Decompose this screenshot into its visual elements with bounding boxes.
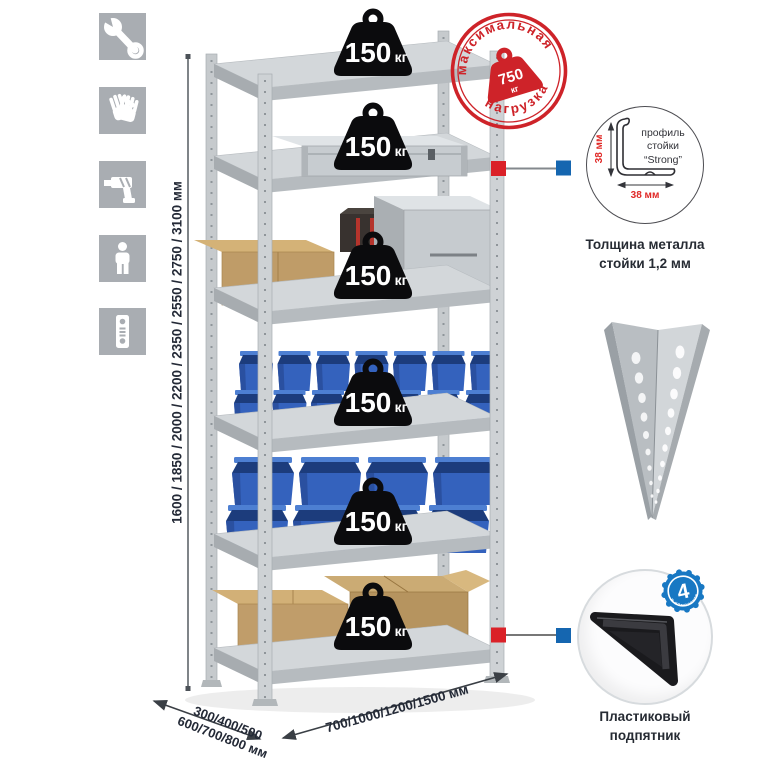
angle-post-image (596, 306, 756, 531)
svg-text:кг: кг (395, 143, 408, 159)
svg-text:стойки: стойки (647, 140, 679, 152)
svg-text:150: 150 (345, 506, 392, 537)
foot-callout-connector (491, 628, 571, 644)
person-icon (99, 235, 146, 282)
shelf-load-weight: 150 кг (321, 229, 425, 301)
red-marker-square (491, 161, 506, 176)
shelf-load-weight: 150 кг (321, 6, 425, 78)
product-infographic: 150 кг 150 кг 150 кг 150 кг 150 (0, 0, 765, 765)
post-profile-detail: 38 мм 38 мм профиль стойки “Strong” (586, 106, 704, 224)
profile-dim-vertical: 38 мм (594, 135, 605, 164)
shelf-load-weight: 150 кг (321, 580, 425, 652)
shelf-load-weight: 150 кг (321, 100, 425, 172)
svg-text:профиль: профиль (641, 127, 685, 139)
height-dimension-line (186, 54, 191, 691)
profile-caption: Толщина металла стойки 1,2 мм (560, 236, 730, 274)
svg-text:150: 150 (345, 260, 392, 291)
svg-text:кг: кг (395, 399, 408, 415)
svg-text:“Strong”: “Strong” (644, 154, 682, 166)
svg-text:150: 150 (345, 387, 392, 418)
level-icon (99, 308, 146, 355)
svg-text:кг: кг (395, 49, 408, 65)
red-marker-square (491, 628, 506, 643)
gloves-icon (99, 87, 146, 134)
shelf-load-weight: 150 кг (321, 356, 425, 428)
svg-text:кг: кг (395, 623, 408, 639)
shelf-load-weight: 150 кг (321, 475, 425, 547)
blue-marker-square (556, 628, 571, 643)
foot-caption: Пластиковый подпятник (565, 708, 725, 746)
blue-marker-square (556, 161, 571, 176)
drill-icon (99, 161, 146, 208)
svg-text:150: 150 (345, 131, 392, 162)
profile-callout-connector (491, 161, 571, 177)
svg-text:кг: кг (395, 272, 408, 288)
svg-text:кг: кг (395, 518, 408, 534)
profile-dim-horizontal: 38 мм (631, 190, 660, 201)
wrench-icon (99, 13, 146, 60)
svg-text:150: 150 (345, 37, 392, 68)
svg-text:150: 150 (345, 611, 392, 642)
included-count-badge: 4 в комплекте (655, 563, 712, 620)
height-dimension-label: 1600 / 1850 / 2000 / 2200 / 2350 / 2550 … (170, 73, 185, 633)
